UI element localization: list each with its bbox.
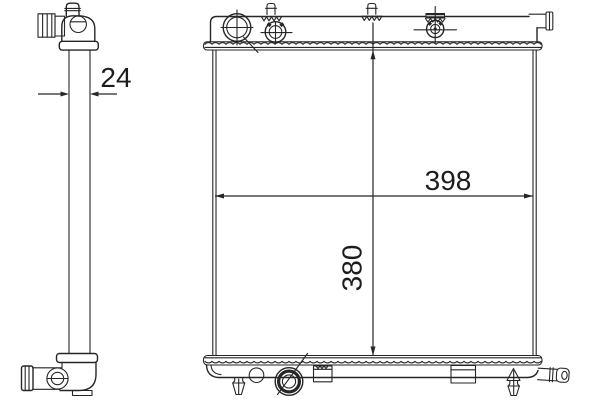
radiator-core bbox=[213, 50, 536, 356]
elbow-port-circle bbox=[70, 16, 86, 32]
dimension-depth: 24 bbox=[38, 62, 132, 97]
height-dimension-label: 380 bbox=[337, 245, 368, 292]
push-pin-right bbox=[507, 369, 520, 396]
depth-dimension-label: 24 bbox=[100, 62, 131, 93]
bracket-tab-right bbox=[451, 366, 476, 384]
side-core-column bbox=[69, 50, 90, 353]
bottom-tank bbox=[204, 354, 570, 396]
side-bottom-elbow-fitting bbox=[22, 354, 98, 396]
hose-connector bbox=[38, 14, 55, 37]
mounting-pin-middle bbox=[362, 4, 382, 21]
inlet-stub-pipe bbox=[529, 12, 553, 42]
dimension-width: 398 bbox=[215, 165, 533, 199]
side-top-elbow-fitting bbox=[38, 3, 98, 50]
technical-drawing-radiator: 24 bbox=[0, 0, 600, 400]
bottom-foot bbox=[73, 391, 93, 396]
push-pin-left bbox=[233, 378, 245, 395]
width-dimension-label: 398 bbox=[425, 165, 472, 196]
top-tank bbox=[204, 4, 553, 53]
hose-connector bbox=[22, 366, 34, 391]
clip-fitting-right bbox=[414, 7, 457, 44]
drain-plug bbox=[275, 354, 307, 396]
bottom-flange bbox=[57, 354, 98, 363]
bracket-box-left bbox=[314, 366, 333, 382]
top-stub-pipe bbox=[66, 3, 79, 16]
outlet-pipe bbox=[538, 367, 570, 383]
bottom-crimp-strip bbox=[204, 356, 543, 366]
sensor-boss-circle bbox=[249, 368, 264, 383]
mounting-pin-left bbox=[261, 4, 292, 44]
elbow-dome bbox=[62, 16, 95, 42]
drawing-svg: 24 bbox=[0, 0, 600, 400]
front-view: 398 380 bbox=[204, 4, 570, 396]
dimension-height: 380 bbox=[337, 23, 376, 356]
top-flange bbox=[59, 41, 98, 50]
side-view: 24 bbox=[22, 3, 132, 395]
bottom-tank-outline bbox=[207, 365, 539, 378]
